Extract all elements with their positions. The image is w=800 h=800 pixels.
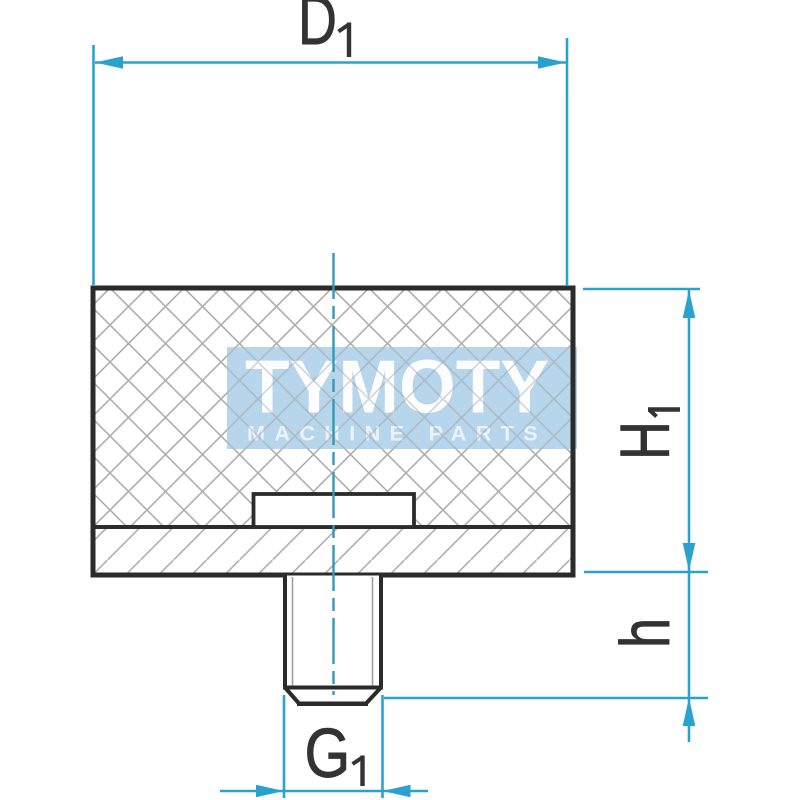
svg-text:D: D: [298, 0, 337, 60]
svg-text:h: h: [606, 618, 684, 648]
svg-text:H: H: [606, 421, 684, 460]
svg-text:G: G: [305, 713, 351, 792]
